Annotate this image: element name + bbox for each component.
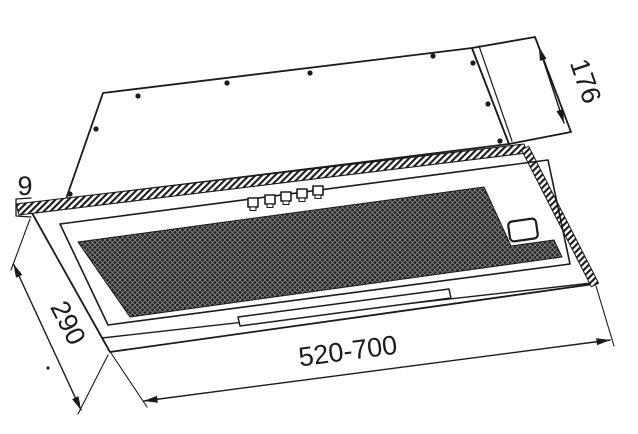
mounting-hole-dot bbox=[93, 126, 98, 131]
stray-mark bbox=[46, 366, 49, 369]
extension-line bbox=[596, 286, 614, 346]
control-button-base bbox=[315, 195, 321, 199]
mounting-hole-dot bbox=[135, 93, 140, 98]
control-button-cap bbox=[248, 198, 258, 207]
mounting-hole-dot bbox=[430, 53, 435, 58]
mounting-hole-dot bbox=[470, 60, 475, 65]
control-button-cap bbox=[265, 195, 275, 204]
extension-line bbox=[11, 219, 30, 270]
extension-line bbox=[111, 353, 147, 407]
dim-label-top-depth: 176 bbox=[564, 55, 607, 107]
control-button-base bbox=[299, 198, 305, 202]
control-button-base bbox=[250, 207, 256, 211]
mounting-hole-dot bbox=[224, 80, 229, 85]
dim-label-frame-thickness: 9 bbox=[17, 171, 32, 201]
control-button-base bbox=[267, 204, 273, 208]
mounting-hole-dot bbox=[497, 138, 502, 143]
hood-drawing-canvas: 176 9 290 520-700 bbox=[0, 0, 638, 434]
control-button-base bbox=[283, 201, 289, 205]
cooker-hood-technical-drawing: 176 9 290 520-700 bbox=[0, 0, 638, 434]
control-button-cap bbox=[313, 186, 323, 195]
dim-label-width-range: 520-700 bbox=[297, 330, 399, 373]
mounting-hole-dot bbox=[67, 191, 72, 196]
control-button-cap bbox=[297, 189, 307, 198]
control-button bbox=[248, 198, 258, 211]
mounting-hole-dot bbox=[485, 101, 490, 106]
control-button bbox=[313, 186, 323, 199]
control-button-cap bbox=[281, 192, 291, 201]
extension-line bbox=[78, 355, 108, 414]
mounting-hole-dot bbox=[307, 70, 312, 75]
lamp-window bbox=[508, 218, 539, 242]
control-button bbox=[297, 189, 307, 202]
control-button bbox=[265, 195, 275, 208]
control-button bbox=[281, 192, 291, 205]
